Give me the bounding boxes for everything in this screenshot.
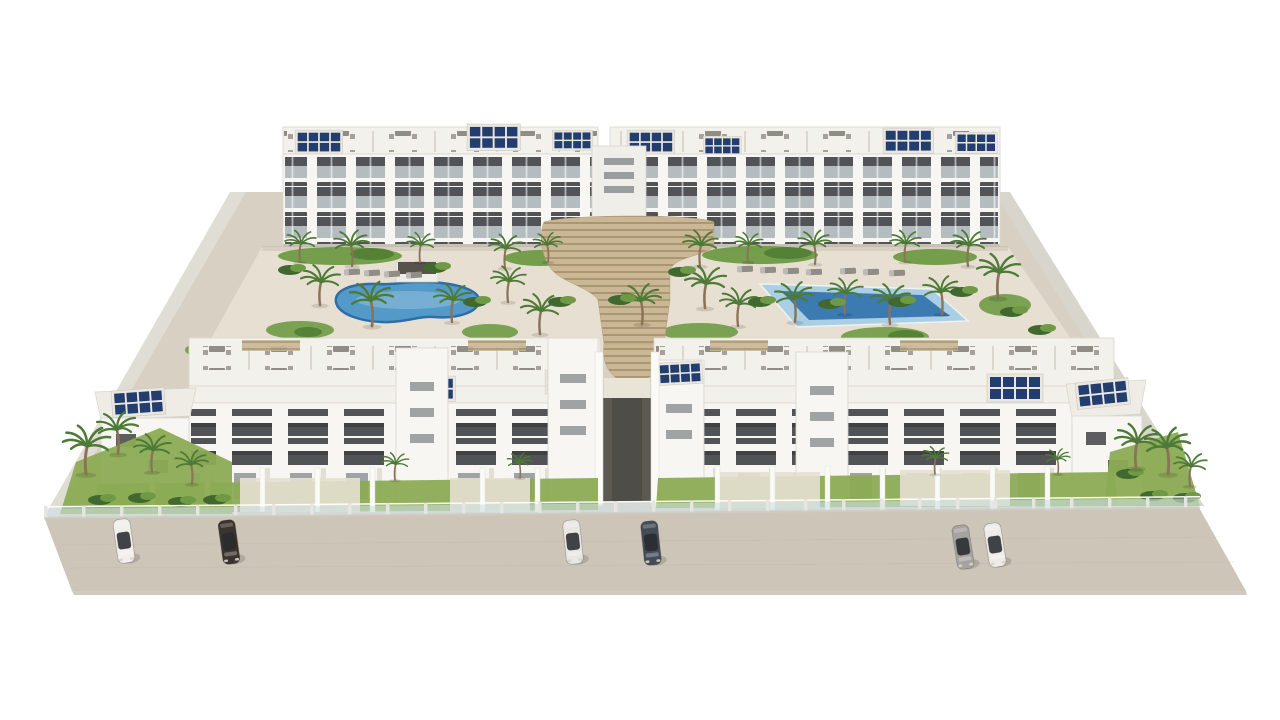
solar-array <box>955 132 997 153</box>
solar-array <box>1075 378 1131 410</box>
solar-array <box>883 128 933 153</box>
floor-2-windows <box>656 438 1112 465</box>
solar-array <box>295 130 343 154</box>
solar-array <box>111 387 166 417</box>
floor-2-windows <box>191 438 598 465</box>
pergola <box>710 340 768 351</box>
floor-2-windows <box>285 187 596 216</box>
solar-array <box>703 136 741 155</box>
architectural-render <box>0 0 1280 720</box>
solar-array <box>657 361 703 386</box>
floor-3-windows <box>612 157 998 186</box>
floor-2-windows <box>612 187 998 216</box>
floor-3-windows <box>191 409 598 436</box>
street-curb <box>72 591 1247 595</box>
floor-3-windows <box>656 409 1112 436</box>
roof-band <box>654 386 1114 403</box>
solar-array <box>552 130 592 150</box>
solar-array <box>467 124 520 151</box>
pergola <box>900 340 958 351</box>
floor-3-windows <box>285 157 596 186</box>
pergola <box>242 340 300 351</box>
render-canvas <box>0 0 1280 720</box>
roof-band <box>189 386 600 403</box>
pergola <box>468 340 526 351</box>
solar-array <box>987 374 1043 402</box>
